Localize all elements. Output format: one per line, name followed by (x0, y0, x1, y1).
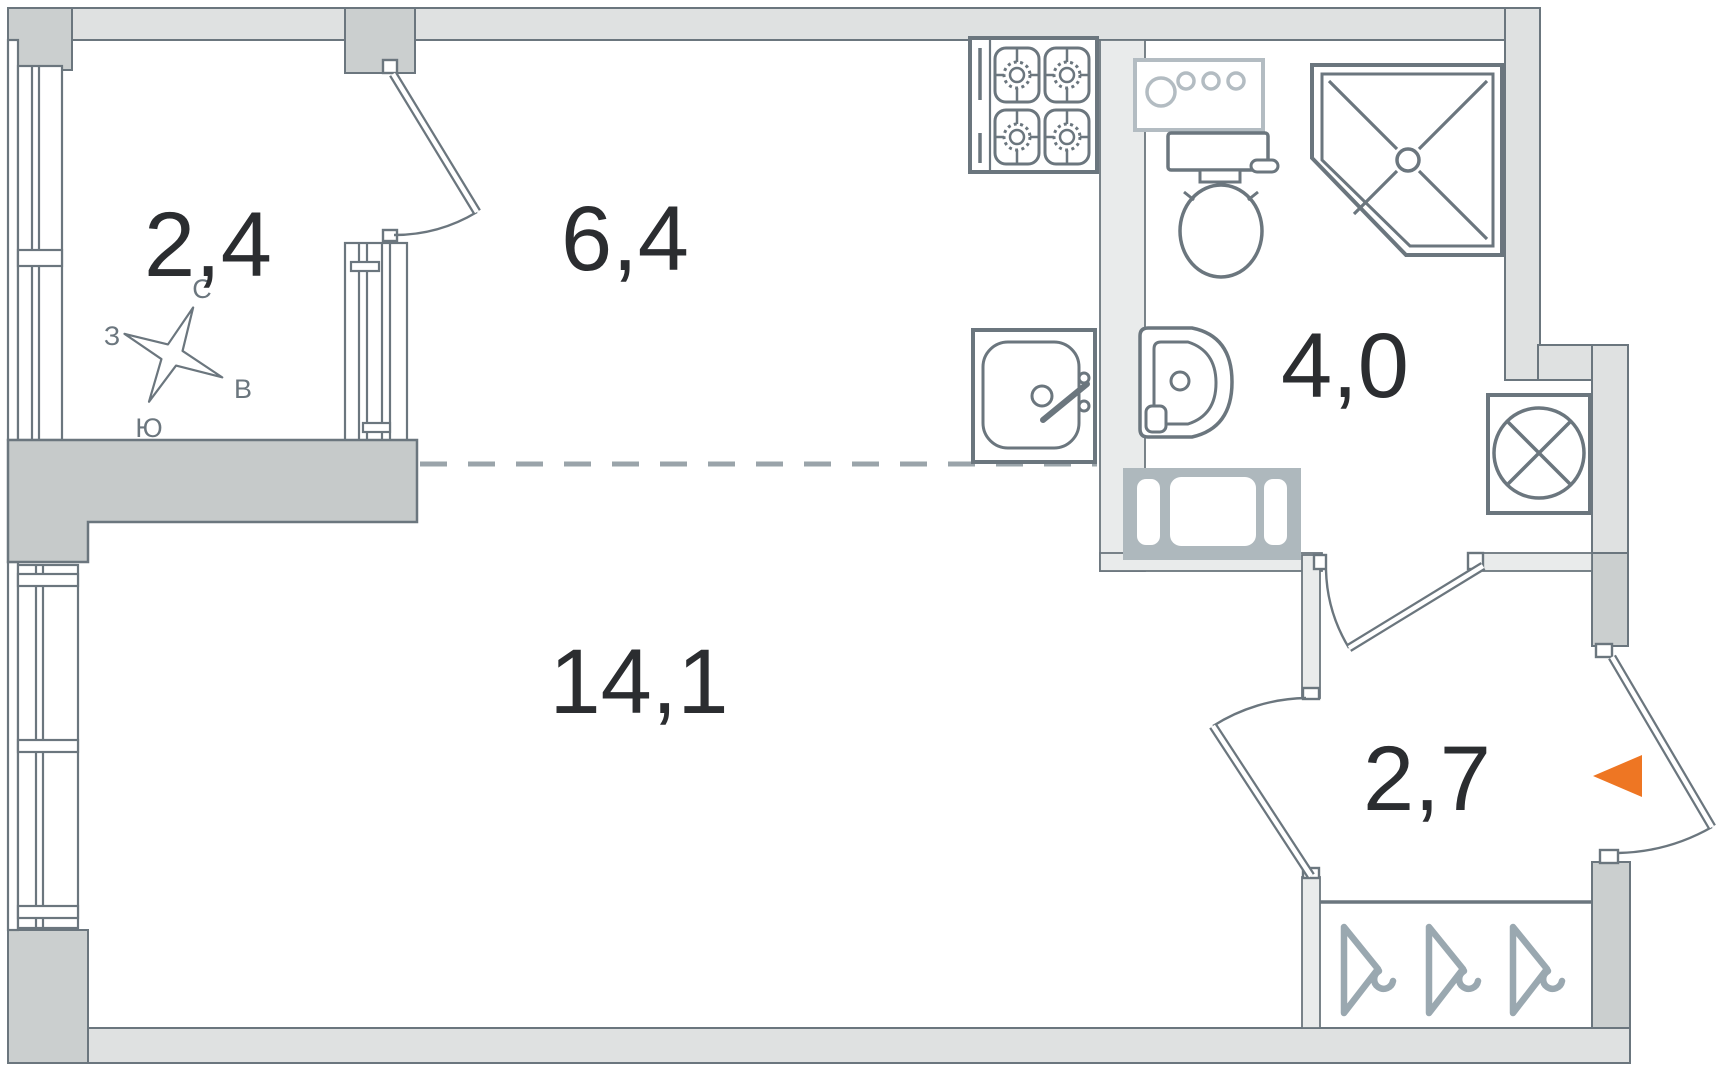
living-room-door (1213, 688, 1319, 878)
entry-top-post (1592, 553, 1628, 646)
top-wall (8, 8, 1540, 40)
bottom-left-block (8, 930, 88, 1063)
coat-hanger-icon (1513, 927, 1562, 1013)
vent-shaft-icon (1123, 468, 1301, 560)
hallway-area-label: 2,7 (1363, 728, 1491, 830)
washbasin-icon (1140, 328, 1232, 437)
compass-east-label: В (234, 374, 252, 404)
balcony-post (345, 8, 415, 73)
wardrobe (1320, 902, 1592, 1013)
kitchen-area-label: 6,4 (561, 188, 689, 290)
living-room-area-label: 14,1 (549, 631, 728, 733)
balcony-room-wall (8, 440, 417, 562)
entrance-arrow-icon (1593, 755, 1642, 797)
balcony-window (8, 40, 62, 440)
compass-south-label: Ю (135, 413, 162, 443)
room-hall-wall-lower (1302, 877, 1320, 1028)
balcony-kitchen-window (345, 243, 407, 447)
floor-plan: С З В Ю 2,4 6,4 4,0 14,1 2,7 (0, 0, 1722, 1065)
bottom-wall (88, 1028, 1630, 1063)
washing-machine-icon (1488, 395, 1590, 513)
bathroom-area-label: 4,0 (1281, 315, 1409, 417)
laundry-counter-icon (1135, 60, 1263, 130)
floor-plan-svg: С З В Ю 2,4 6,4 4,0 14,1 2,7 (0, 0, 1722, 1065)
compass-west-label: З (104, 321, 120, 351)
shower-icon (1312, 65, 1502, 255)
window-glass (345, 243, 407, 447)
window-frame (8, 562, 18, 930)
coat-hanger-icon (1344, 927, 1393, 1013)
right-wall-mid (1592, 345, 1628, 558)
entry-door (1596, 644, 1712, 863)
bathroom-door (1314, 553, 1483, 648)
toilet-icon (1168, 133, 1278, 277)
kitchen-sink-icon (973, 330, 1095, 462)
stove-icon (970, 38, 1097, 172)
window-frame (8, 40, 18, 440)
coat-hanger-icon (1429, 927, 1478, 1013)
bathroom-hall-wall-right (1483, 553, 1592, 571)
balcony-door (383, 60, 477, 241)
compass-rose-icon: С З В Ю (103, 274, 252, 443)
balcony-area-label: 2,4 (144, 194, 272, 296)
living-room-window (8, 562, 78, 930)
right-wall-upper (1505, 8, 1540, 380)
room-hall-wall-upper (1302, 555, 1320, 698)
